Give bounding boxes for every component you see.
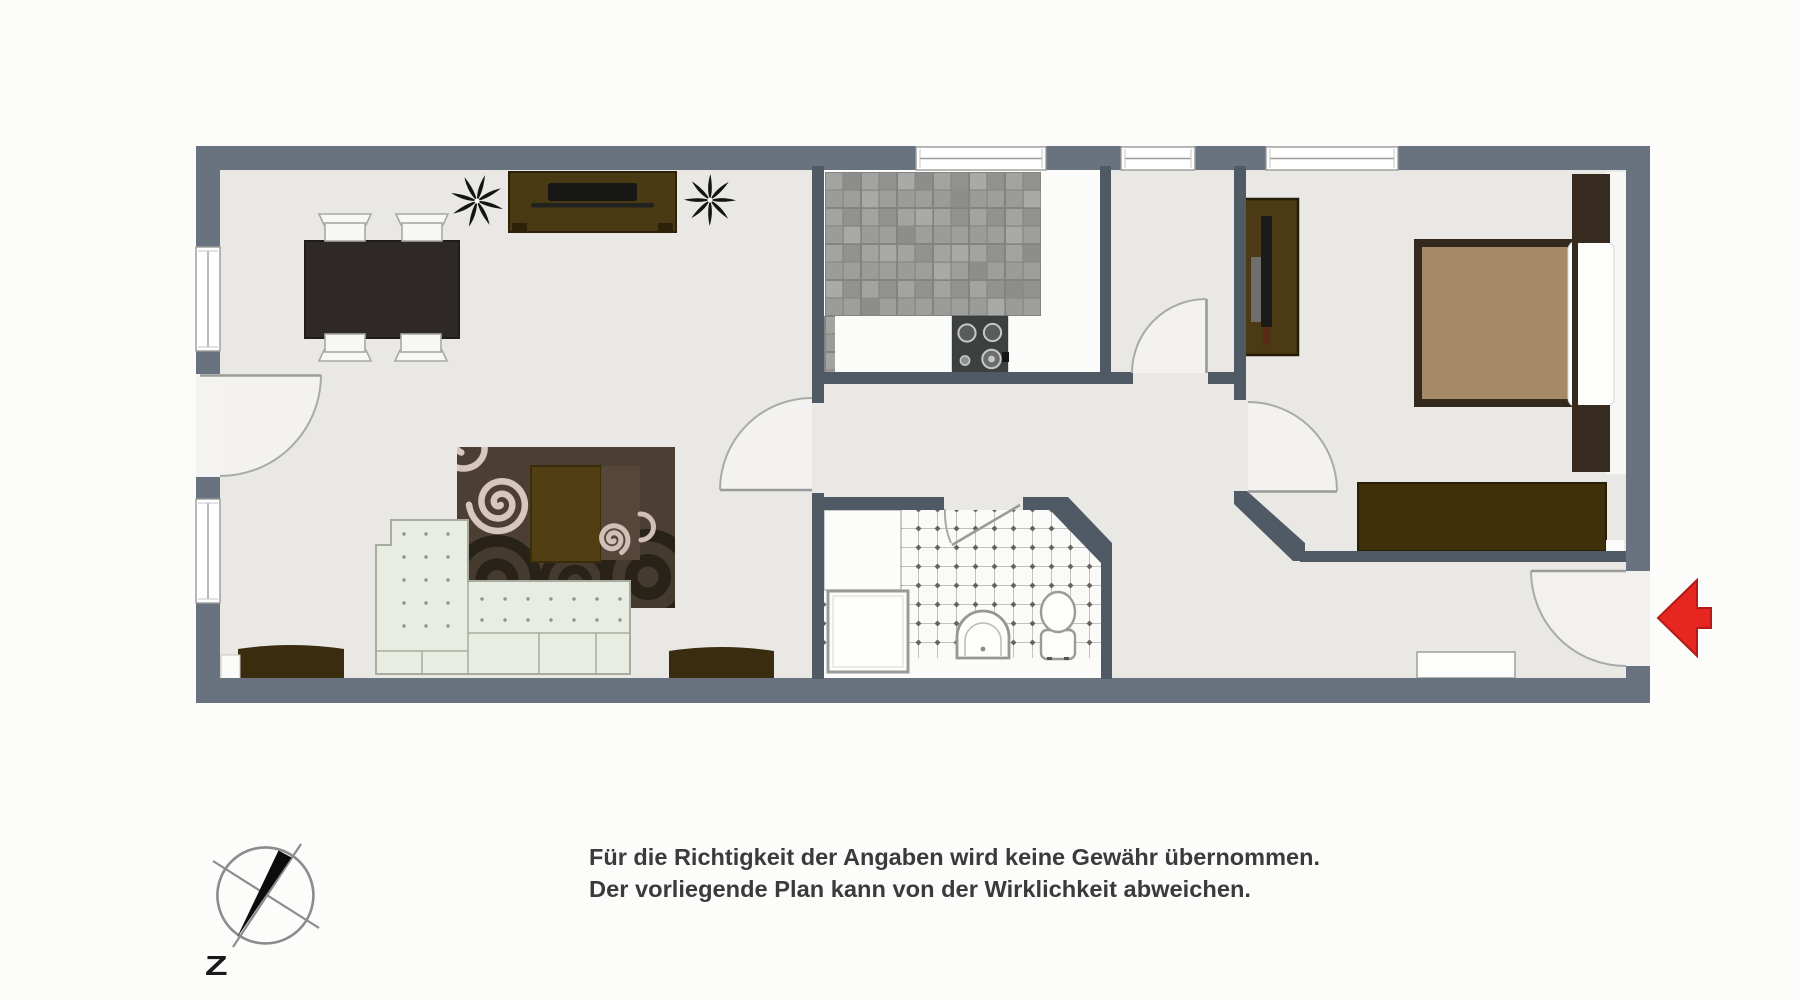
svg-text:Der vorliegende Plan kann von: Der vorliegende Plan kann von der Wirkli… <box>589 876 1251 902</box>
svg-text:Für die Richtigkeit der Angabe: Für die Richtigkeit der Angaben wird kei… <box>589 844 1320 870</box>
svg-text:Z: Z <box>205 949 228 981</box>
